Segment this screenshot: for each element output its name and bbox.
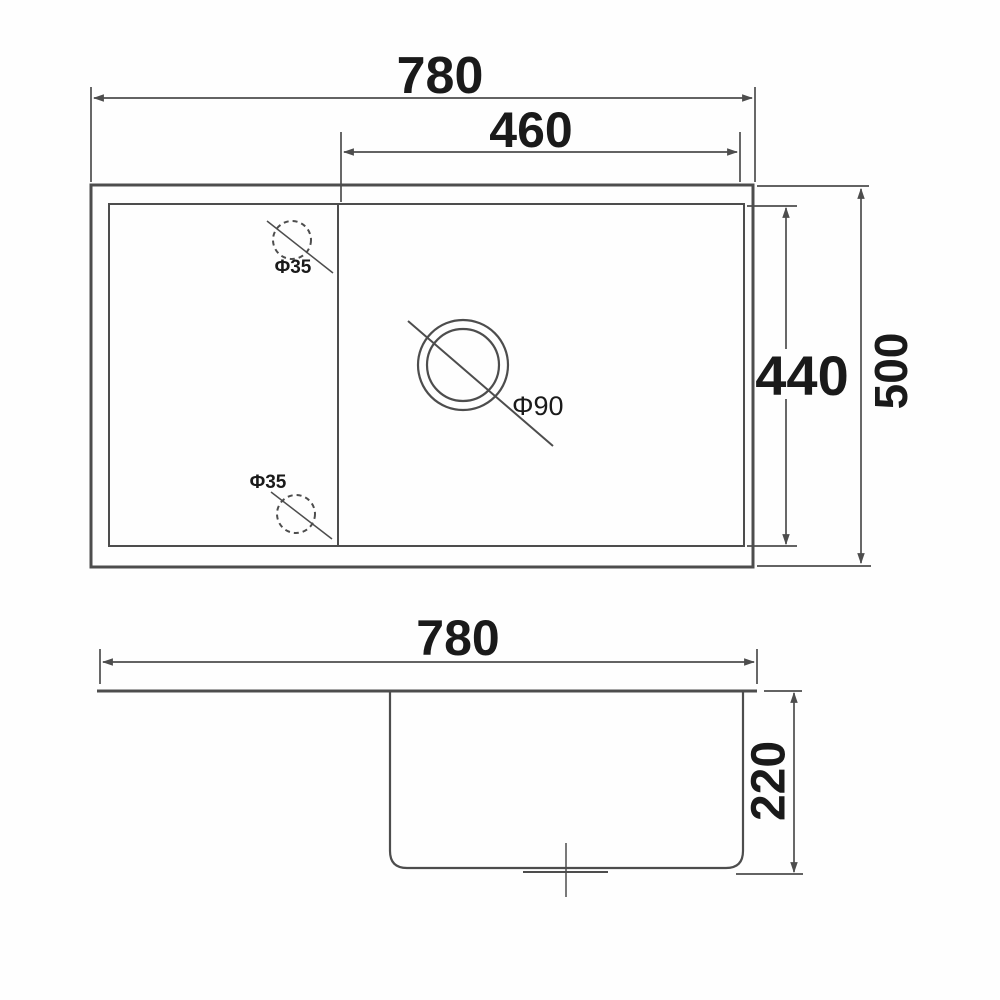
sink-outer-rim	[91, 185, 753, 567]
sink-dimension-drawing: 780 460 Φ35 Φ35 Φ90	[0, 0, 1000, 1000]
side-view: 780 220	[97, 610, 803, 897]
dim-side-overall-width: 780	[100, 610, 757, 684]
dim-label-bowl-depth: 220	[743, 741, 796, 821]
waste-hole-diagonal-line	[408, 321, 553, 446]
tap-hole-upper: Φ35	[267, 221, 333, 278]
dim-label-overall-depth: 500	[865, 333, 917, 410]
tap-hole-upper-label: Φ35	[275, 257, 312, 278]
technical-drawing-page: 780 460 Φ35 Φ35 Φ90	[0, 0, 1000, 1000]
tap-hole-lower: Φ35	[250, 472, 332, 539]
top-view: 780 460 Φ35 Φ35 Φ90	[91, 47, 917, 567]
dim-top-overall-width: 780	[91, 47, 755, 182]
tap-hole-lower-axis-line	[271, 492, 332, 539]
dim-side-bowl-depth: 220	[736, 691, 803, 874]
waste-hole: Φ90	[408, 320, 564, 446]
dim-top-bowl-width: 460	[341, 102, 740, 202]
waste-hole-label: Φ90	[512, 391, 564, 421]
dim-label-bowl-front-to-back: 440	[755, 344, 848, 407]
bowl-profile-outline	[390, 691, 743, 868]
dim-top-bowl-front-to-back: 440	[747, 206, 849, 546]
dim-label-side-overall-width: 780	[416, 610, 499, 666]
tap-hole-lower-label: Φ35	[250, 472, 287, 493]
dim-label-overall-width: 780	[397, 47, 484, 105]
sink-basin-outline	[109, 204, 744, 546]
dim-label-bowl-width: 460	[489, 102, 572, 158]
